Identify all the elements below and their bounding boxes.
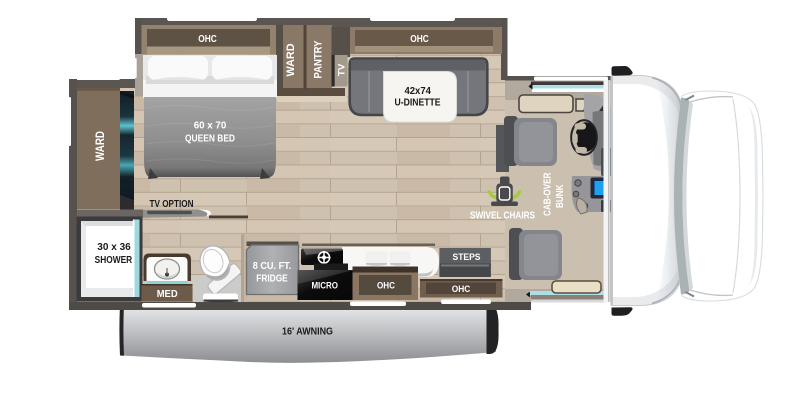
svg-text:OHC: OHC [410, 34, 429, 45]
svg-text:SWIVEL CHAIRS: SWIVEL CHAIRS [470, 210, 535, 221]
svg-text:MED: MED [157, 289, 178, 300]
svg-text:TV OPTION: TV OPTION [150, 199, 194, 210]
svg-text:30 x 36: 30 x 36 [97, 242, 131, 253]
svg-text:STEPS: STEPS [453, 252, 481, 263]
svg-text:TV: TV [337, 63, 348, 76]
svg-text:OHC: OHC [198, 34, 217, 45]
svg-text:OHC: OHC [452, 284, 471, 295]
svg-text:U-DINETTE: U-DINETTE [395, 97, 441, 109]
svg-text:16' AWNING: 16' AWNING [282, 326, 333, 337]
svg-text:WARD: WARD [285, 43, 297, 76]
svg-text:BUNK: BUNK [554, 184, 566, 208]
svg-text:60 x 70: 60 x 70 [194, 120, 227, 131]
svg-text:QUEEN BED: QUEEN BED [185, 134, 235, 145]
svg-text:42x74: 42x74 [404, 85, 431, 97]
svg-text:SHOWER: SHOWER [95, 255, 133, 266]
svg-text:FRIDGE: FRIDGE [256, 274, 288, 285]
svg-text:OHC: OHC [377, 280, 395, 291]
svg-text:WARD: WARD [95, 131, 107, 161]
svg-text:8 CU. FT.: 8 CU. FT. [253, 261, 292, 272]
svg-text:CAB-OVER: CAB-OVER [541, 172, 553, 216]
svg-text:PANTRY: PANTRY [313, 40, 325, 79]
svg-text:MICRO: MICRO [311, 281, 338, 292]
